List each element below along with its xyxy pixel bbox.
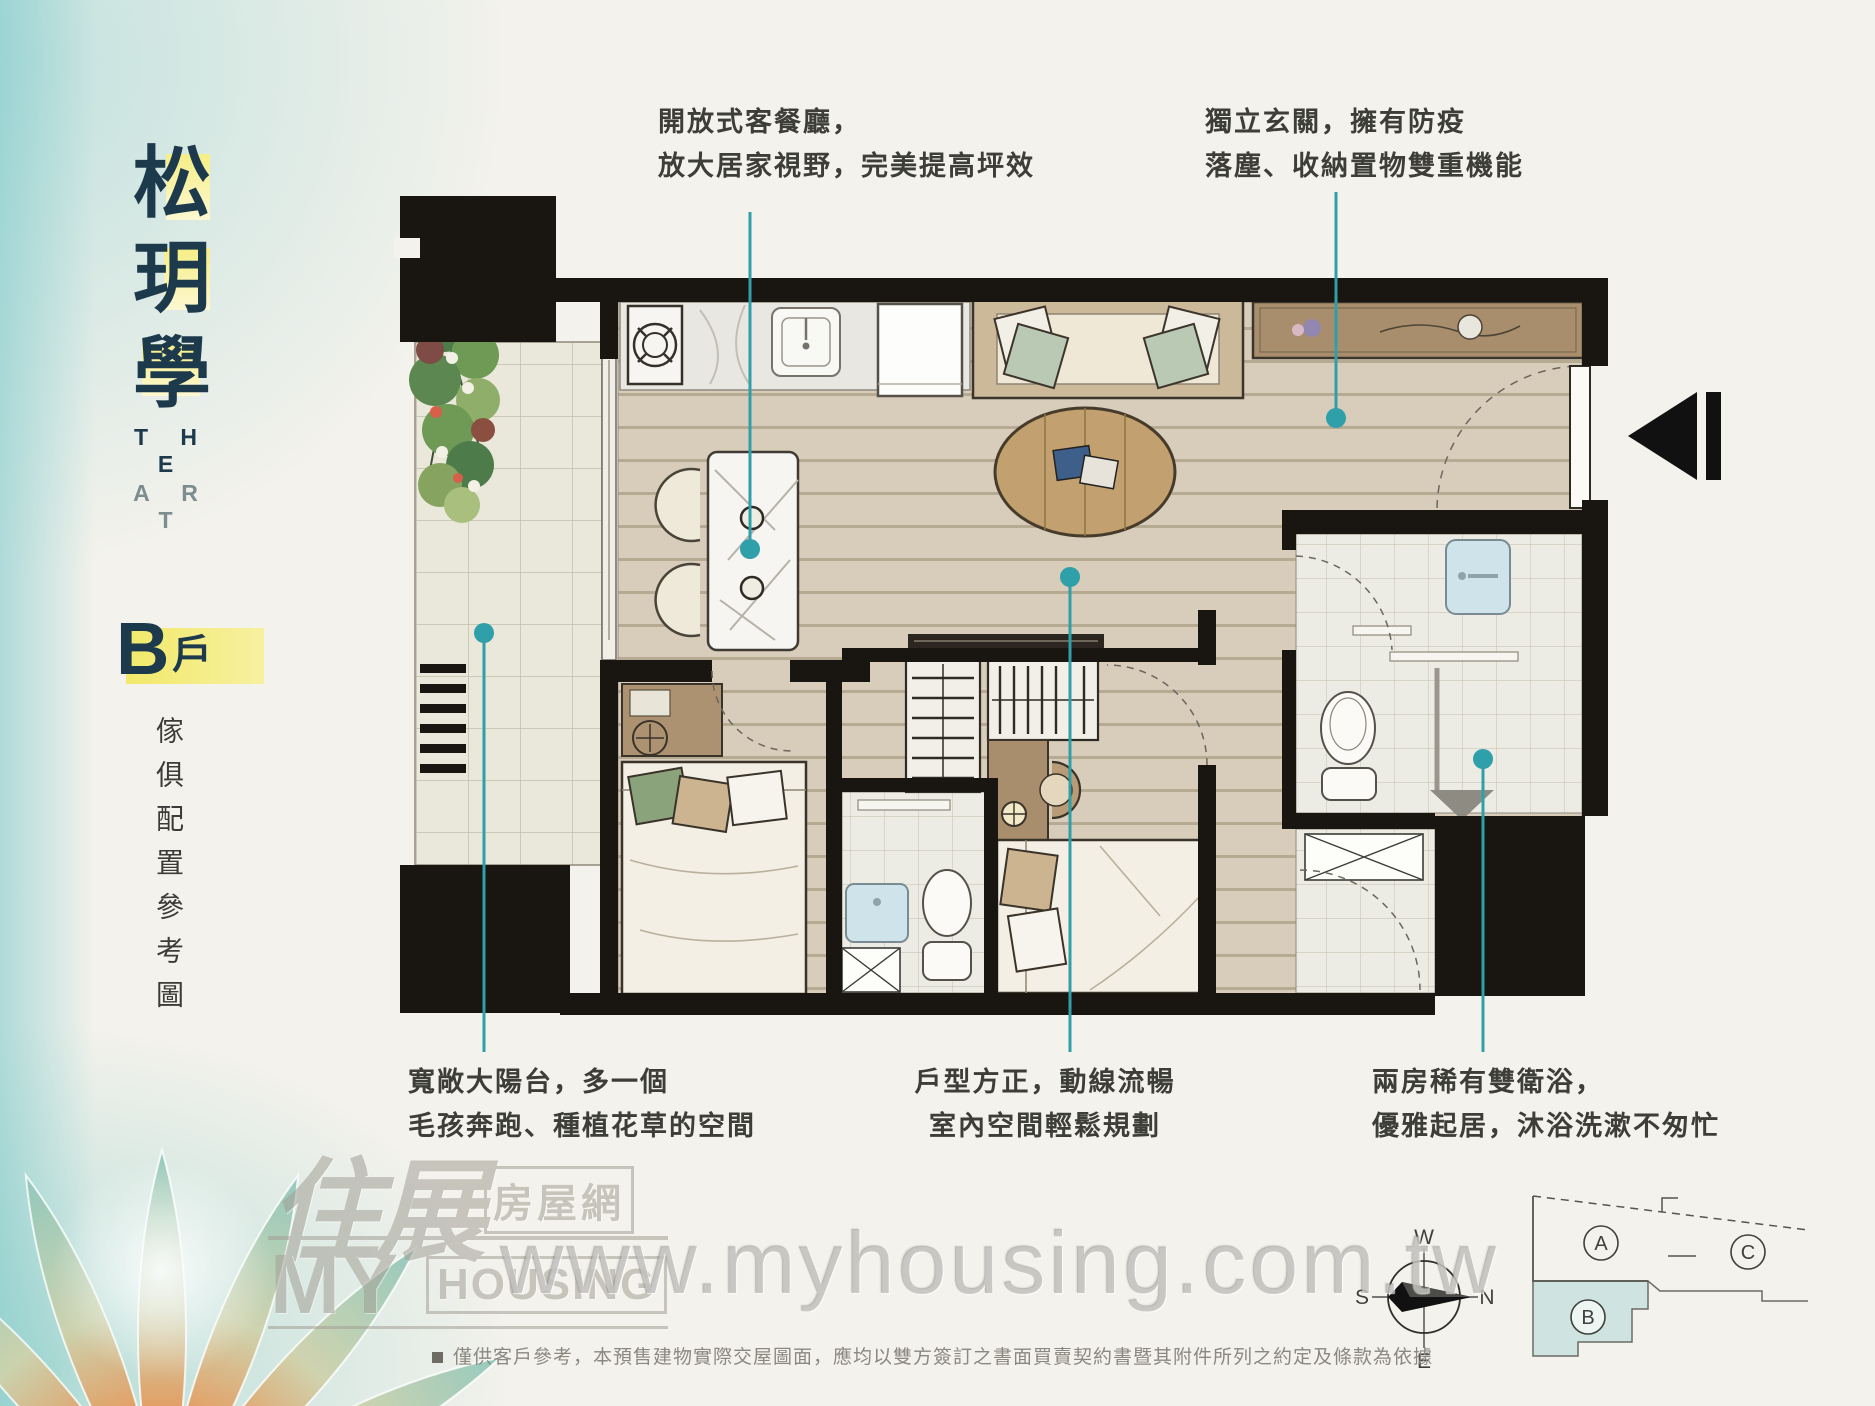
annotation-bath-line2: 優雅起居，沐浴洗漱不匆忙 <box>1372 1104 1720 1148</box>
brand-subtitle-the: T H E <box>112 424 232 478</box>
annotation-foyer: 獨立玄關，擁有防疫 落塵、收納置物雙重機能 <box>1205 100 1524 188</box>
annotation-balcony-line1: 寬敞大陽台，多一個 <box>408 1060 756 1104</box>
keyplan-unit-b-label: B <box>1581 1307 1594 1329</box>
disclaimer: 僅供客戶參考，本預售建物實際交屋圖面，應均以雙方簽訂之書面買賣契約書暨其附件所列… <box>432 1342 1433 1369</box>
logo-en-my: MY <box>270 1236 400 1333</box>
annotation-living-line2: 放大居家視野，完美提高坪效 <box>658 144 1035 188</box>
fridge <box>878 304 962 396</box>
unit-label: B 戶 <box>116 612 264 684</box>
brand-char-1: 松 <box>112 136 232 231</box>
keyplan: A C B <box>1533 1196 1808 1356</box>
vertical-note: 傢俱配置參考圖 <box>148 716 188 1024</box>
brand-logo: 松 玥 學 <box>112 136 232 421</box>
unit-letter: B <box>116 606 169 691</box>
brand-subtitle: T H E A R T <box>112 424 232 534</box>
bathroom-2 <box>1296 534 1582 820</box>
kitchen <box>620 302 970 396</box>
wardrobe-2 <box>988 660 1098 740</box>
washer-box-1 <box>842 948 900 992</box>
annotation-bath: 兩房稀有雙衛浴， 優雅起居，沐浴洗漱不匆忙 <box>1372 1060 1720 1148</box>
annotation-foyer-line1: 獨立玄關，擁有防疫 <box>1205 100 1524 144</box>
entry-arrow-icon <box>1628 392 1721 480</box>
desk-1 <box>622 684 722 756</box>
kitchen-sink <box>772 308 840 376</box>
laundry-nook <box>1296 829 1435 993</box>
annotation-living-line1: 開放式客餐廳， <box>658 100 1035 144</box>
brand-char-2: 玥 <box>112 231 232 326</box>
disclaimer-bullet-icon <box>432 1352 443 1363</box>
annotation-living: 開放式客餐廳， 放大居家視野，完美提高坪效 <box>658 100 1035 188</box>
brand-subtitle-art: A R T <box>112 480 232 534</box>
annotation-bath-line1: 兩房稀有雙衛浴， <box>1372 1060 1720 1104</box>
stove <box>628 306 682 384</box>
logo-rule-bottom <box>268 1326 668 1329</box>
tv-wall-unit <box>908 634 1104 648</box>
keyplan-unit-c-label: C <box>1741 1242 1755 1264</box>
brand-char-3: 學 <box>112 326 232 421</box>
annotation-layout-line1: 戶型方正，動線流暢 <box>890 1060 1200 1104</box>
washer-box-2 <box>1305 834 1423 880</box>
sofa <box>973 300 1243 398</box>
disclaimer-text: 僅供客戶參考，本預售建物實際交屋圖面，應均以雙方簽訂之書面買賣契約書暨其附件所列… <box>453 1347 1433 1368</box>
annotation-layout-line2: 室內空間輕鬆規劃 <box>890 1104 1200 1148</box>
entry-console <box>1253 302 1583 358</box>
bed-1 <box>622 762 806 994</box>
flyer-canvas: W N E S A C B 松 玥 學 T H E A R T <box>0 0 1875 1406</box>
watermark-url: www.myhousing.com.tw <box>500 1212 1499 1314</box>
wardrobe-1 <box>906 660 980 792</box>
bed-2 <box>997 840 1209 993</box>
bathroom-1 <box>842 792 998 993</box>
coffee-table <box>995 408 1175 536</box>
annotation-foyer-line2: 落塵、收納置物雙重機能 <box>1205 144 1524 188</box>
unit-suffix: 戶 <box>172 622 212 680</box>
annotation-layout: 戶型方正，動線流暢 室內空間輕鬆規劃 <box>890 1060 1200 1148</box>
keyplan-unit-a-label: A <box>1594 1233 1608 1255</box>
